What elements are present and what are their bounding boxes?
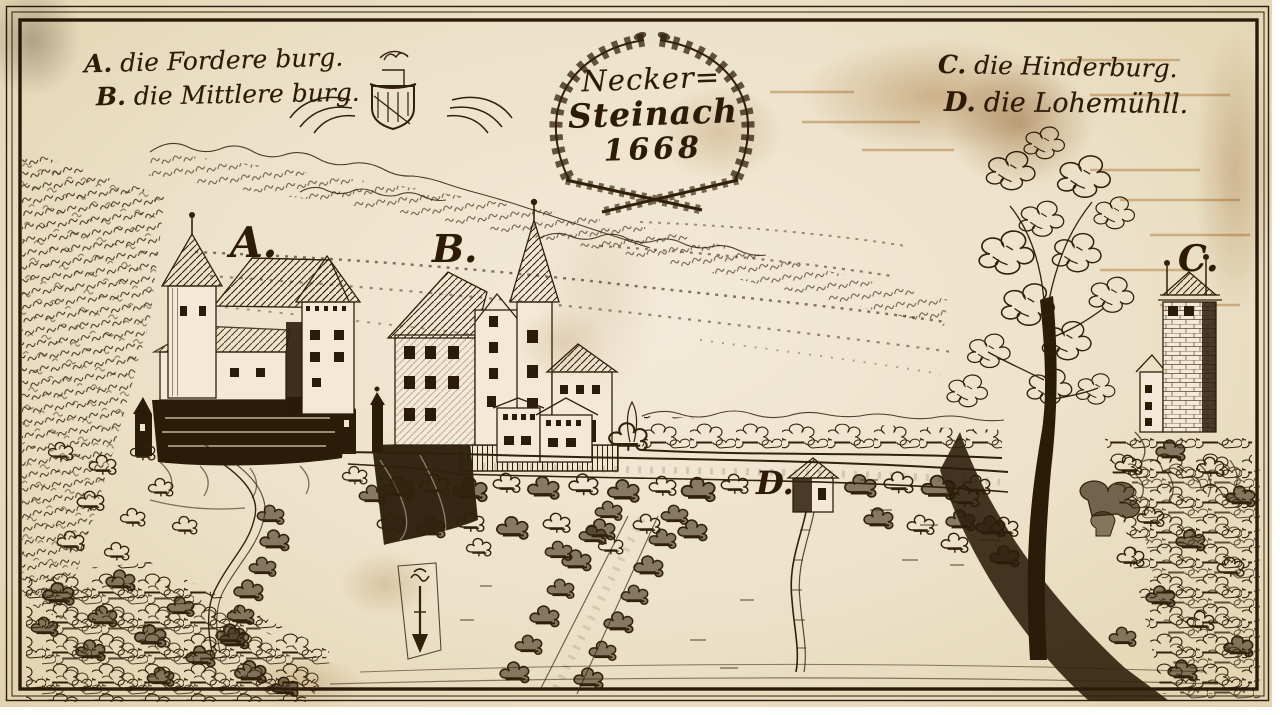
big-tree-drawing — [940, 127, 1168, 700]
legend-letter-d: D. — [944, 87, 976, 118]
legend-name-hinterburg: die Hinderburg. — [974, 51, 1178, 84]
riverbank-hedge — [609, 402, 1004, 458]
legend-name-vorderburg: die Fordere burg. — [120, 43, 344, 78]
title-line-2: Steinach — [567, 91, 736, 136]
mill-drawing — [788, 458, 838, 672]
legend-letter-c: C. — [938, 50, 967, 79]
north-arrow — [398, 563, 441, 659]
legend-name-mittelburg: die Mittlere burg. — [134, 78, 360, 111]
engraving-neckarsteinach-1668: A.die Fordere burg. B.die Mittlere burg.… — [0, 0, 1280, 715]
legend-top-right-row-d: D.die Lohemühll. — [944, 89, 1188, 119]
marker-vorderburg: A. — [230, 218, 277, 267]
title-year: 1668 — [569, 129, 738, 170]
cartouche-title: Necker= Steinach 1668 — [566, 59, 738, 170]
legend-name-mill: die Lohemühll. — [984, 87, 1189, 120]
marker-mill: D. — [756, 464, 794, 502]
legend-top-right-row-c: C.die Hinderburg. — [938, 52, 1178, 82]
marker-hinterburg: C. — [1178, 238, 1219, 280]
bottom-left-bush-field — [26, 562, 332, 702]
marker-mittelburg: B. — [432, 226, 477, 271]
legend-letter-a: A. — [84, 49, 113, 79]
legend-letter-b: B. — [96, 82, 126, 112]
legend-top-left-row-b: B.die Mittlere burg. — [96, 80, 360, 111]
